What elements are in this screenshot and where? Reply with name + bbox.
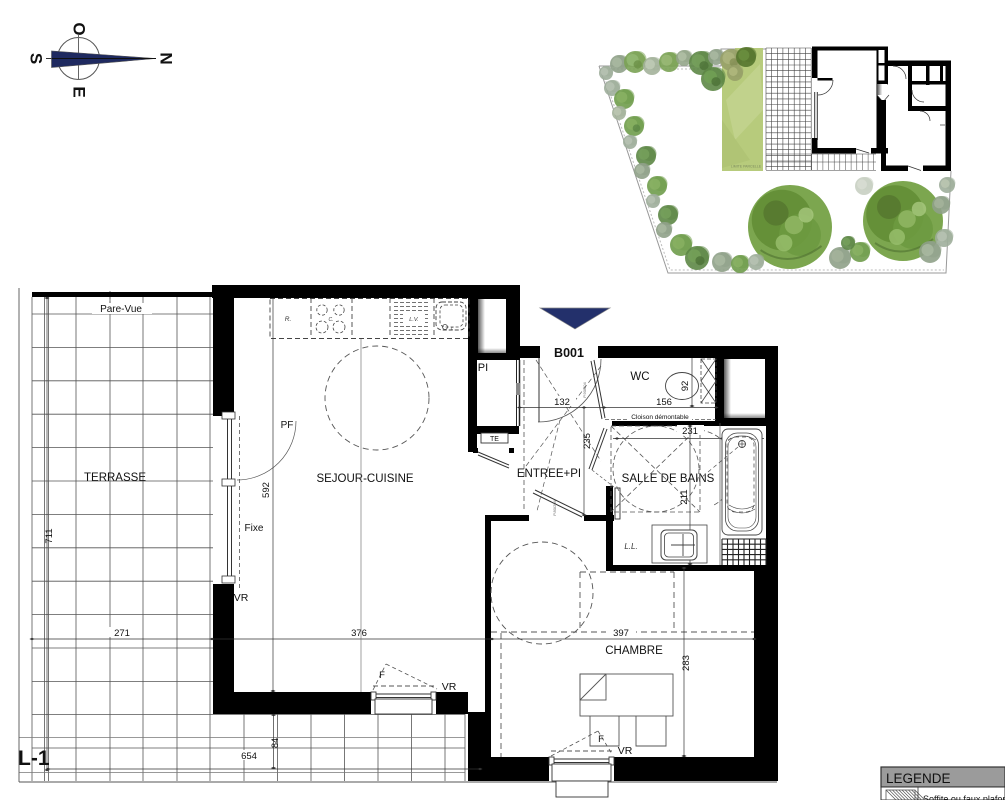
svg-text:SEJOUR-CUISINE: SEJOUR-CUISINE [316, 473, 413, 485]
svg-text:CHAMBRE: CHAMBRE [605, 645, 663, 657]
svg-text:84: 84 [270, 738, 280, 748]
svg-text:Cloison démontable: Cloison démontable [631, 414, 689, 421]
svg-text:L.L.: L.L. [624, 542, 637, 551]
svg-text:E: E [70, 86, 89, 97]
svg-text:397: 397 [613, 628, 629, 639]
svg-text:VR: VR [234, 592, 249, 604]
svg-text:592: 592 [261, 482, 272, 498]
svg-text:F: F [598, 734, 604, 745]
svg-text:Fixe: Fixe [245, 523, 264, 534]
svg-text:P.90/204: P.90/204 [582, 381, 587, 397]
svg-text:S: S [27, 53, 46, 64]
svg-text:C.: C. [329, 317, 334, 323]
svg-text:SALLE DE BAINS: SALLE DE BAINS [622, 473, 715, 485]
svg-text:271: 271 [114, 628, 130, 639]
svg-text:156: 156 [656, 397, 672, 408]
svg-text:PF: PF [281, 420, 294, 431]
svg-text:L-1: L-1 [18, 747, 50, 770]
svg-text:P.80/204: P.80/204 [552, 499, 557, 515]
svg-text:R.: R. [285, 316, 292, 323]
svg-text:132: 132 [554, 397, 570, 408]
svg-text:B001: B001 [554, 346, 584, 360]
svg-text:Soffite ou faux plafond: Soffite ou faux plafond [923, 794, 1005, 800]
svg-text:283: 283 [681, 655, 692, 671]
svg-text:376: 376 [351, 628, 367, 639]
svg-text:LEGENDE: LEGENDE [886, 771, 951, 786]
svg-text:VR: VR [618, 745, 633, 757]
svg-text:ENTREE+PI: ENTREE+PI [517, 468, 581, 480]
svg-text:LIMITE PARCELLE: LIMITE PARCELLE [731, 165, 762, 169]
svg-text:N: N [157, 52, 176, 64]
svg-text:F: F [379, 670, 385, 681]
svg-text:211: 211 [679, 489, 690, 504]
svg-text:654: 654 [241, 751, 257, 762]
svg-text:WC: WC [630, 371, 649, 383]
svg-text:Pare-Vue: Pare-Vue [100, 304, 142, 315]
svg-text:TERRASSE: TERRASSE [84, 472, 146, 484]
svg-text:O: O [70, 22, 89, 35]
svg-text:TE: TE [490, 436, 499, 443]
svg-text:235: 235 [582, 433, 593, 449]
svg-text:VR: VR [442, 681, 457, 693]
svg-text:PI: PI [478, 362, 488, 374]
svg-text:711: 711 [44, 528, 55, 543]
svg-text:92: 92 [680, 381, 691, 392]
svg-text:L.V.: L.V. [409, 317, 419, 323]
